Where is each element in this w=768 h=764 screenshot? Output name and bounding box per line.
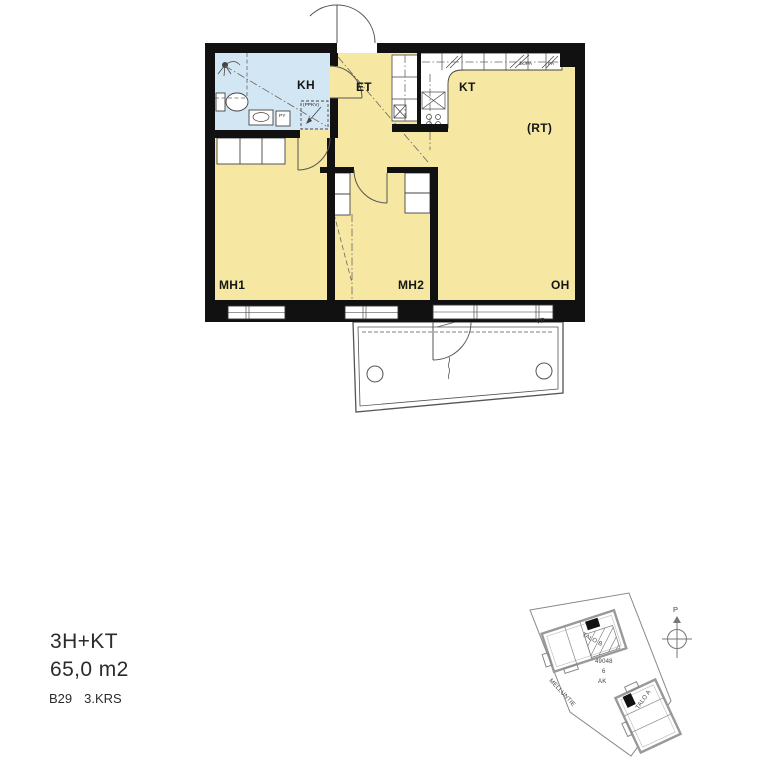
apartment-unit-floor: B293.KRS — [49, 691, 122, 706]
fridge-freezer-label: JK/PA — [519, 62, 532, 67]
apartment-type: 3H+KT — [50, 630, 118, 654]
freezer-label: PA — [548, 62, 554, 67]
dryer-label: PY — [279, 114, 285, 119]
room-label-kt: KT — [459, 80, 476, 94]
windows — [228, 305, 553, 319]
floorplan-page: KH ET KT (RT) MH1 MH2 OH (PPKV) PY JK/PA… — [0, 0, 768, 764]
building-talo-a — [608, 674, 680, 755]
balcony — [353, 321, 563, 412]
balcony-label: VP — [536, 317, 546, 325]
unit-number: B29 — [49, 691, 72, 706]
plot-lot-label: 6 — [602, 669, 606, 675]
plot-zoning-label: AK — [598, 679, 606, 685]
room-label-mh2: MH2 — [398, 278, 424, 292]
room-label-rt: (RT) — [527, 121, 552, 135]
apartment-area: 65,0 m2 — [50, 658, 129, 682]
washing-machine-reservation-label: (PPKV) — [303, 103, 319, 108]
room-label-et: ET — [356, 80, 372, 94]
room-label-oh: OH — [551, 278, 570, 292]
floor-number: 3.KRS — [84, 691, 122, 706]
building-talo-b — [536, 610, 628, 678]
north-symbol — [662, 616, 692, 658]
room-label-mh1: MH1 — [219, 278, 245, 292]
site-plan — [530, 593, 692, 756]
room-label-kh: KH — [297, 78, 315, 92]
north-label: P — [673, 605, 678, 614]
plot-number-label: 49048 — [595, 659, 613, 665]
